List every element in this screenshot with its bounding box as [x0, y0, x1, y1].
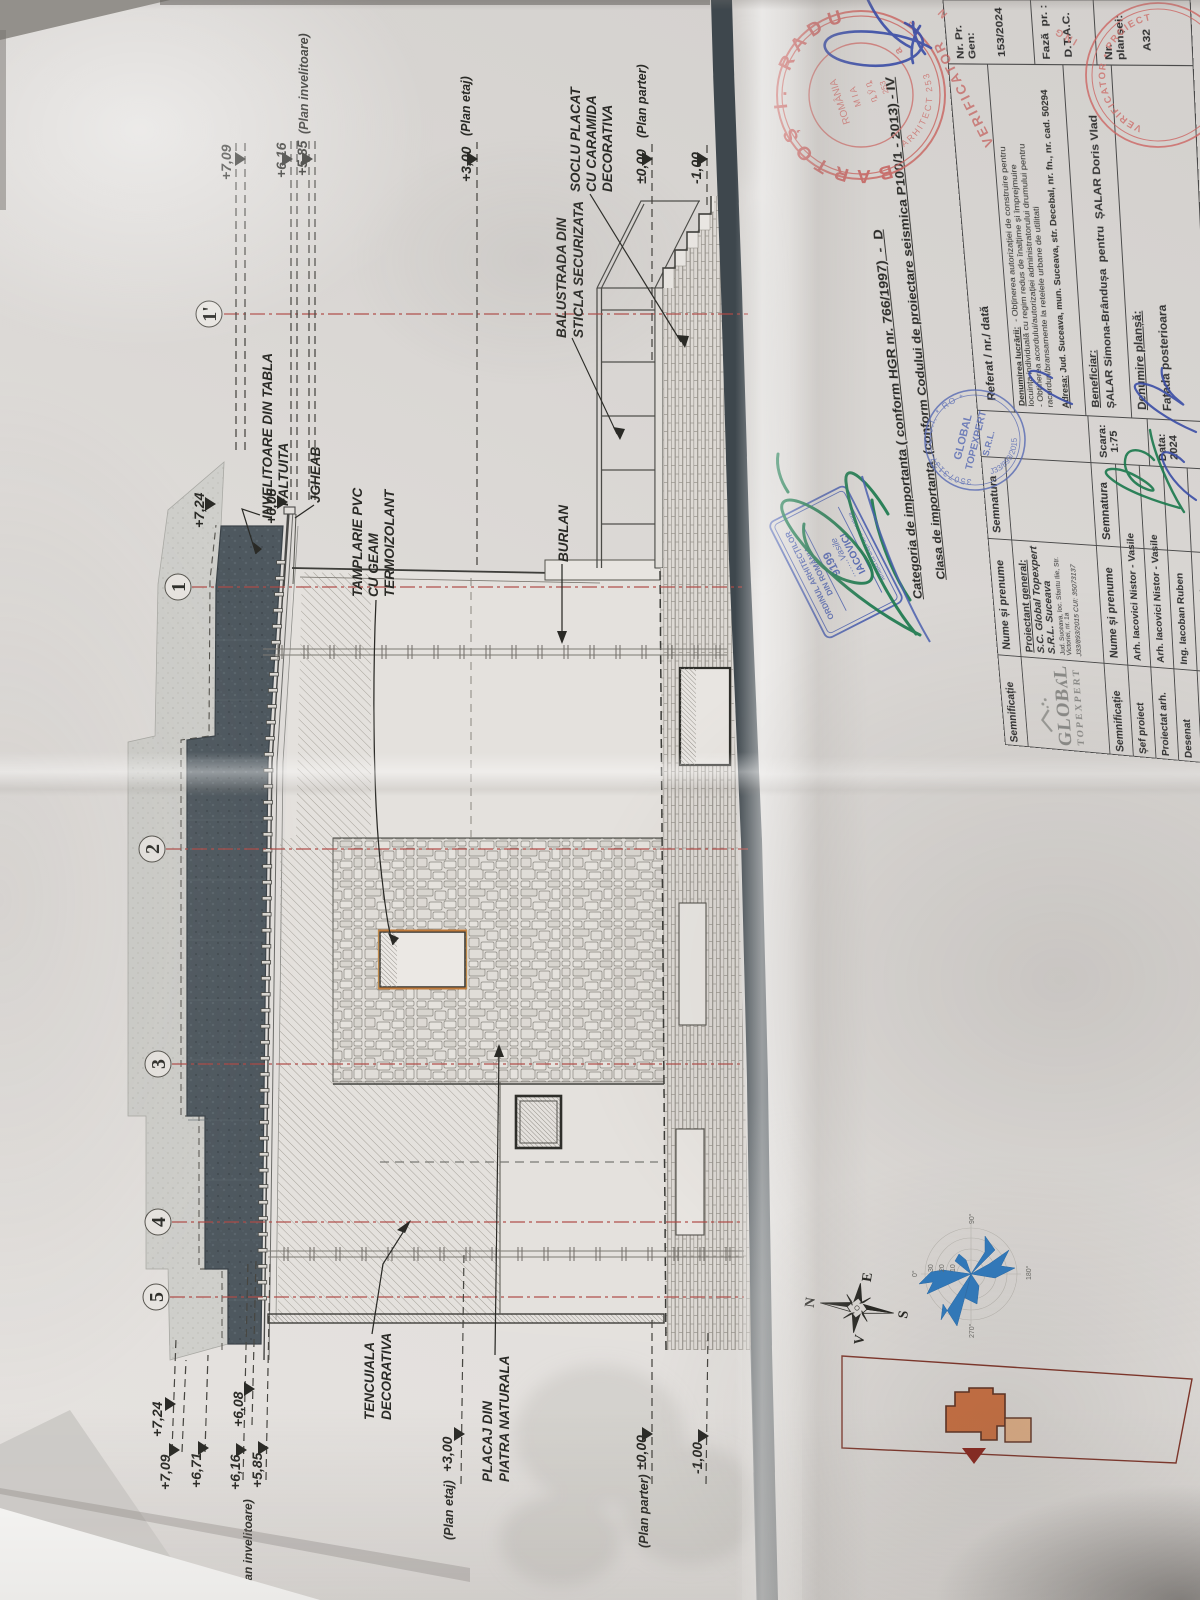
svg-text:S: S — [896, 1310, 912, 1320]
svg-text:ROMÂNIA: ROMÂNIA — [826, 77, 853, 126]
svg-text:N: N — [803, 1296, 819, 1308]
svg-text:ARHITECT 253: ARHITECT 253 — [899, 70, 934, 148]
svg-text:V: V — [852, 1334, 868, 1346]
svg-text:253: 253 — [878, 79, 891, 95]
svg-text:E: E — [860, 1272, 876, 1283]
svg-text:N: N — [936, 6, 950, 20]
svg-text:ȵ ȳ ȵ: ȵ ȳ ȵ — [862, 79, 879, 104]
svg-text:VERIFICATOR • PROIECTE • ATEST: VERIFICATOR • PROIECTE • ATESTAT — [0, 12, 1153, 1600]
svg-text:10: 10 — [950, 1264, 957, 1272]
svg-text:90°: 90° — [968, 1213, 976, 1224]
svg-text:a: a — [892, 44, 906, 56]
svg-text:I N G: I N G — [1054, 26, 1080, 47]
svg-text:20: 20 — [939, 1264, 946, 1272]
svg-text:M I A: M I A — [847, 86, 863, 109]
svg-text:270°: 270° — [968, 1323, 976, 1338]
svg-text:30: 30 — [928, 1264, 935, 1272]
svg-text:180°: 180° — [1025, 1265, 1033, 1280]
svg-text:0°: 0° — [911, 1270, 919, 1277]
